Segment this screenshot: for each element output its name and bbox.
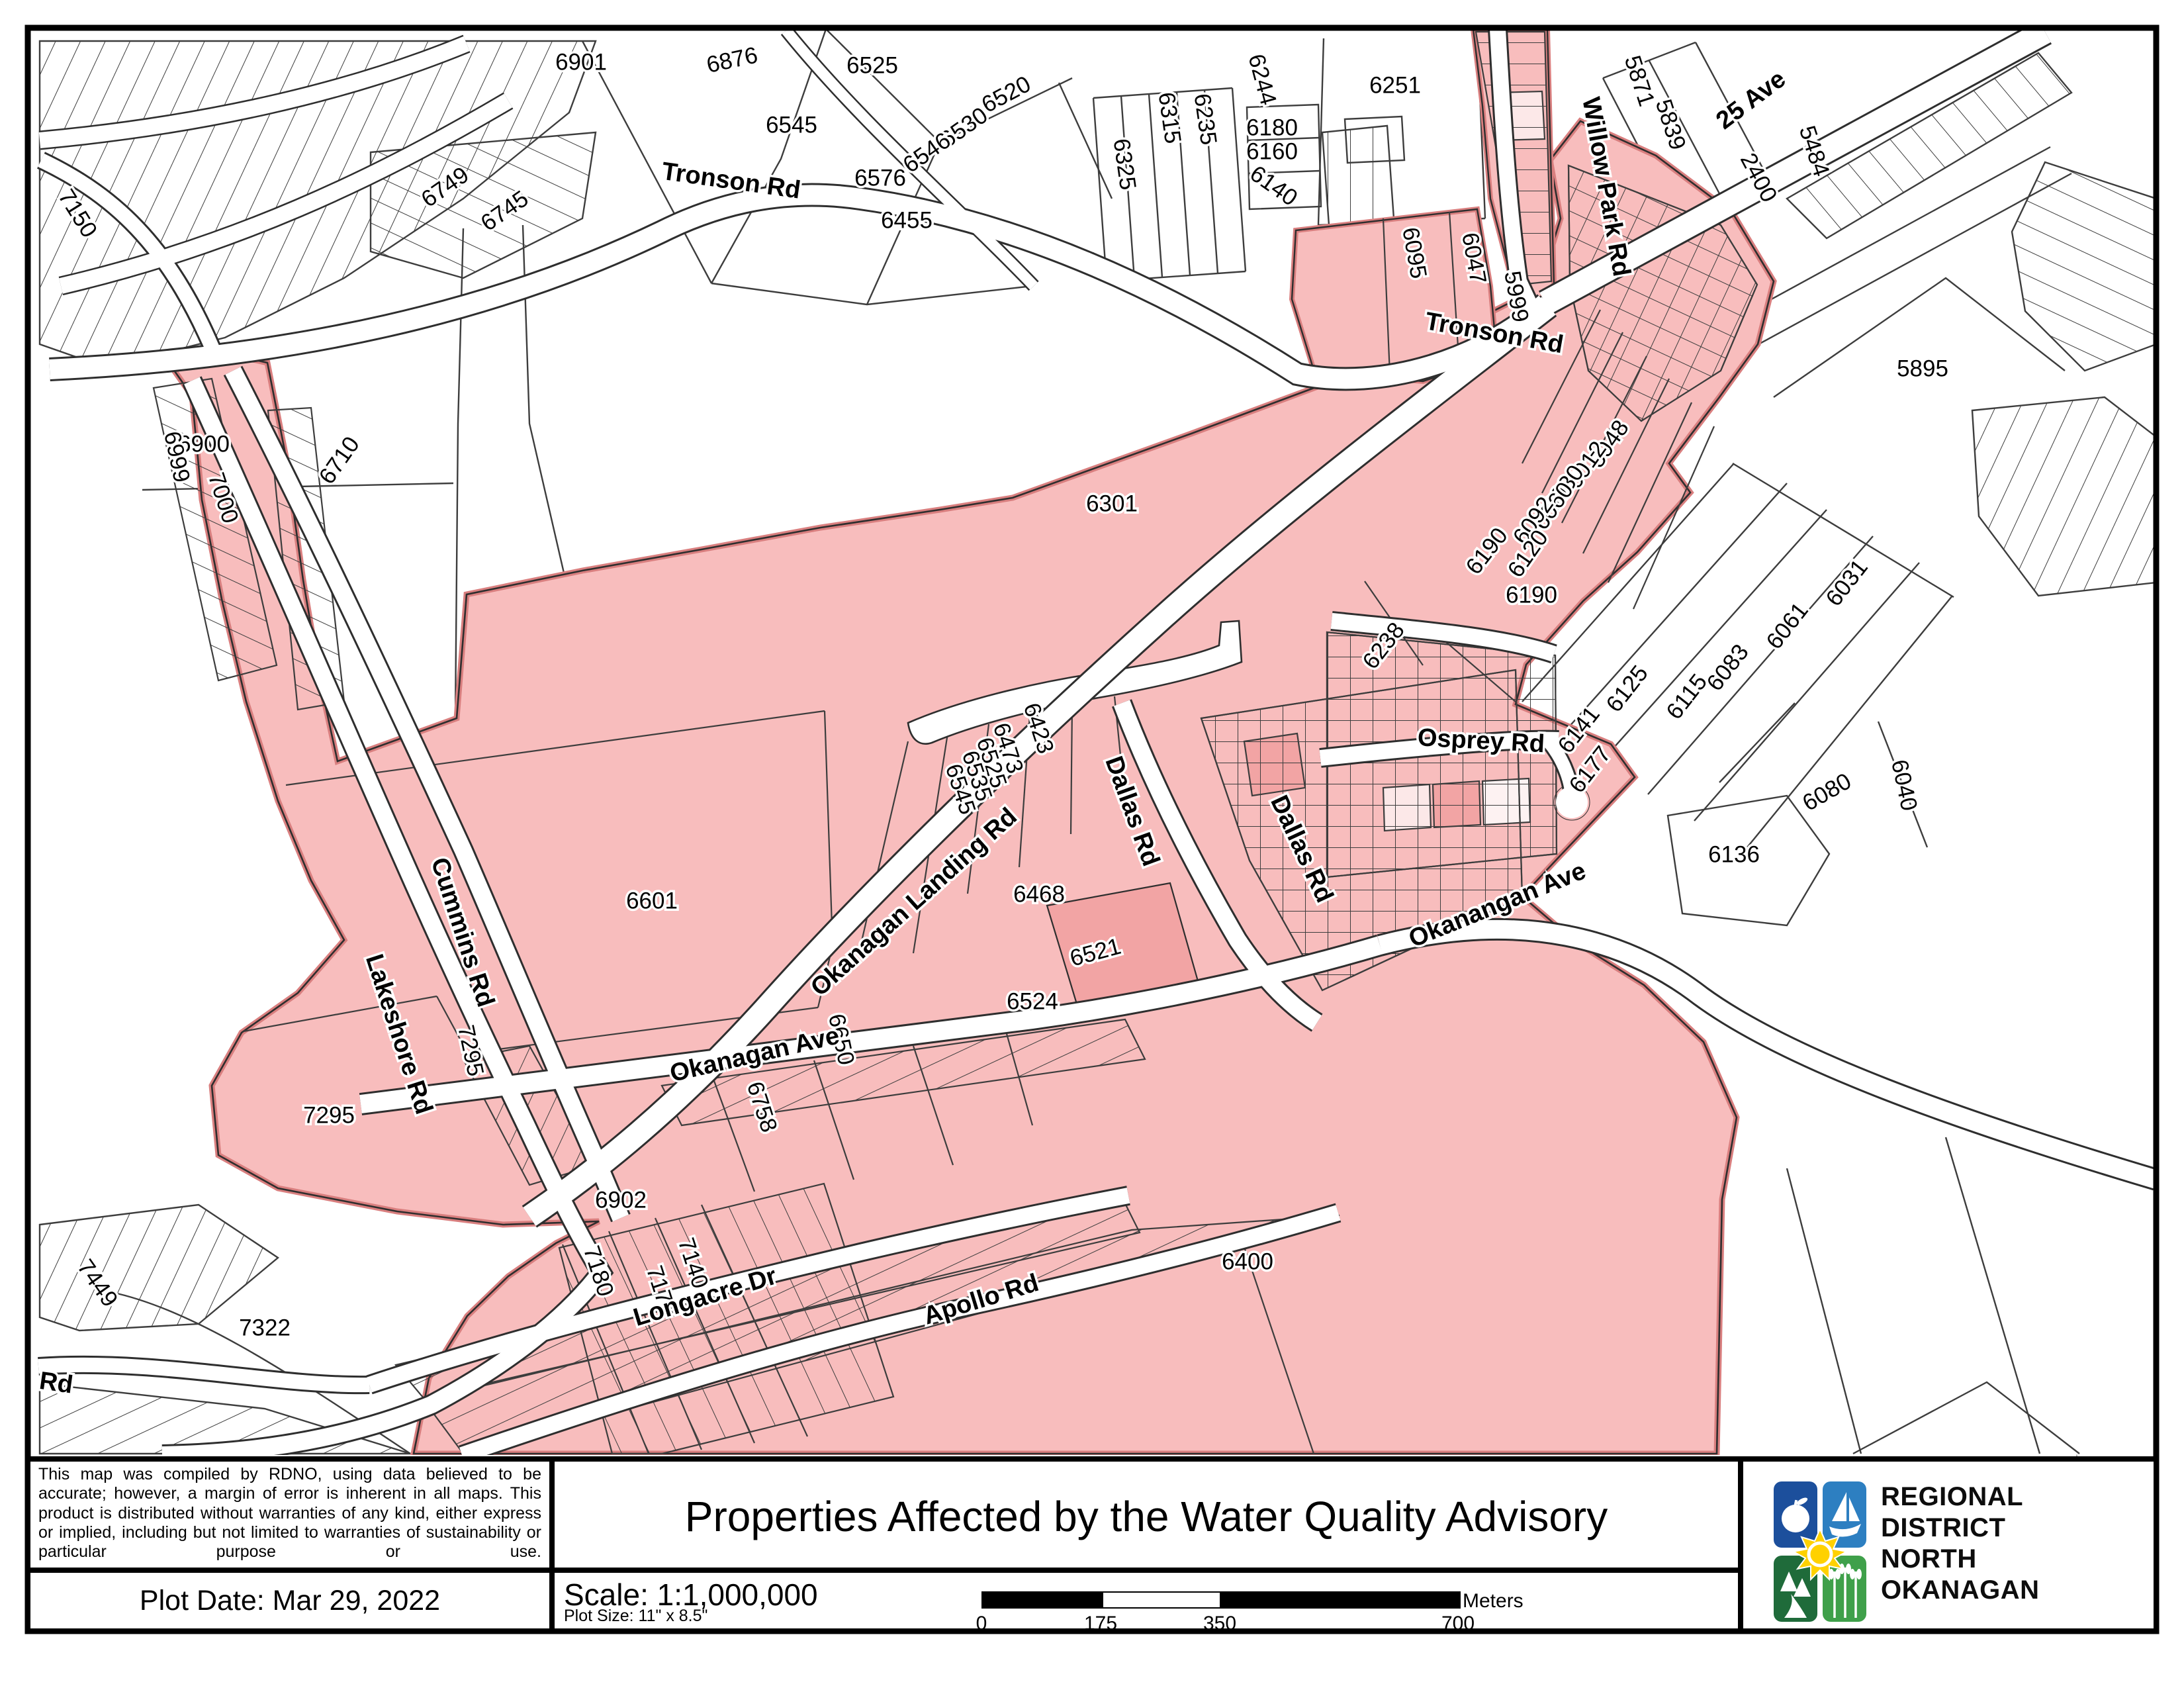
- plot-date-text: Plot Date: Mar 29, 2022: [30, 1573, 549, 1617]
- scale-box: Scale: 1:1,000,000 Plot Size: 11" x 8.5"…: [549, 1568, 1743, 1634]
- parcel-label: 6468: [1013, 881, 1065, 907]
- logo-line-district: DISTRICT: [1881, 1513, 2040, 1544]
- parcel-label: 6902: [595, 1187, 647, 1213]
- logo-box: REGIONAL DISTRICT NORTH OKANAGAN: [1738, 1456, 2159, 1634]
- parcel-label: 6251: [1369, 72, 1421, 98]
- parcel-label: 6576: [854, 165, 906, 191]
- disclaimer-box: This map was compiled by RDNO, using dat…: [25, 1456, 555, 1573]
- scale-bar-segment: [1102, 1593, 1221, 1607]
- parcel-label: 6901: [555, 49, 607, 75]
- page-title: Properties Affected by the Water Quality…: [555, 1462, 1738, 1541]
- plot-size-label: Plot Size: 11" x 8.5": [564, 1607, 707, 1626]
- scale-tick-700: 700: [1441, 1613, 1475, 1635]
- map-sheet: 6901687665456525652065306546657664556749…: [0, 0, 2184, 1688]
- parcel-label: 6525: [846, 52, 898, 78]
- map-canvas[interactable]: 6901687665456525652065306546657664556749…: [0, 0, 2184, 1688]
- parcel-label: 7295: [303, 1102, 355, 1128]
- parcel-label: 6160: [1246, 138, 1298, 164]
- scale-tick-0: 0: [976, 1613, 987, 1635]
- parcel-label: 6180: [1246, 115, 1298, 140]
- logo-line-regional: REGIONAL: [1881, 1481, 2040, 1513]
- parcel-label: 6190: [1506, 582, 1557, 608]
- plot-date-box: Plot Date: Mar 29, 2022: [25, 1568, 555, 1634]
- logo-line-north: NORTH: [1881, 1544, 2040, 1575]
- disclaimer-text: This map was compiled by RDNO, using dat…: [30, 1462, 549, 1565]
- scale-bar: [981, 1591, 1461, 1609]
- parcel-label: 5895: [1897, 355, 1948, 381]
- wheat-icon: [1829, 1564, 1862, 1618]
- parcel-label: 6455: [881, 207, 933, 233]
- scale-bar-segment: [983, 1593, 1102, 1607]
- parcel-label: 6601: [626, 888, 678, 914]
- road-label: Rd: [38, 1367, 75, 1399]
- parcel-label: 7322: [239, 1315, 291, 1340]
- title-box: Properties Affected by the Water Quality…: [549, 1456, 1743, 1573]
- parcel-label: 6136: [1708, 841, 1760, 867]
- scale-units: Meters: [1463, 1590, 1524, 1613]
- parcel-label: 6524: [1007, 988, 1058, 1014]
- scale-tick-350: 350: [1203, 1613, 1236, 1635]
- scale-bar-segment: [1221, 1593, 1459, 1607]
- rdno-logo: [1772, 1480, 1872, 1626]
- parcel-label: 6545: [766, 112, 817, 138]
- scale-tick-175: 175: [1084, 1613, 1117, 1635]
- parcel-label: 6301: [1086, 491, 1138, 516]
- parcel-label: 6400: [1222, 1248, 1273, 1274]
- logo-line-okanagan: OKANAGAN: [1881, 1575, 2040, 1606]
